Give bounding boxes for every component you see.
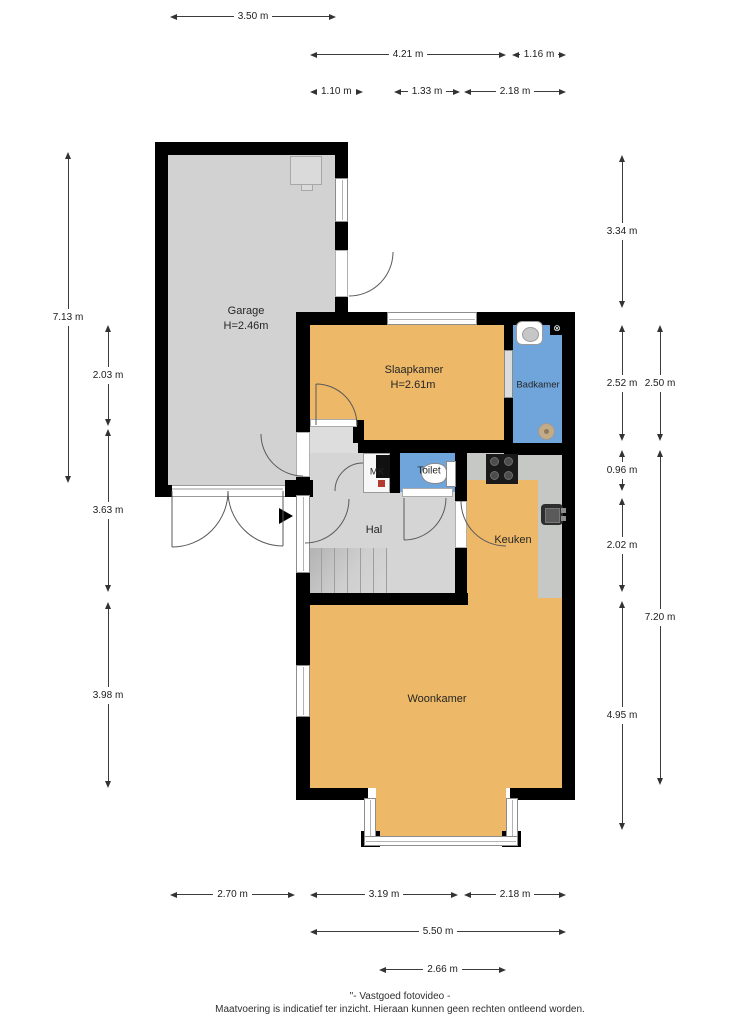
garage-label: Garage	[228, 305, 265, 317]
dimension-right-250: 2.50 m	[638, 325, 682, 441]
dimension-left-713: 7.13 m	[46, 152, 90, 483]
slaapkamer-height-label: H=2.61m	[391, 379, 436, 391]
dimension-top-133: 1.33 m	[394, 85, 460, 98]
dimension-top-slaapkamer: 4.21 m	[310, 48, 506, 61]
hal-label: Hal	[366, 524, 383, 536]
dimension-right-720: 7.20 m	[638, 450, 682, 785]
mk-label: MK	[370, 467, 384, 478]
dimension-right-334: 3.34 m	[600, 155, 644, 308]
toilet-label: Toilet	[417, 466, 440, 477]
footer-disclaimer: Maatvoering is indicatief ter inzicht. H…	[70, 1003, 730, 1016]
dimension-bottom-218: 2.18 m	[464, 888, 566, 901]
dimension-top-218: 2.18 m	[464, 85, 566, 98]
slaapkamer-label: Slaapkamer	[385, 364, 444, 376]
floor-plan-page: ⊗ Garage H=2.46m Slaapkamer H=2.61m Badk…	[0, 0, 730, 1032]
dimension-top-badkamer: 1.16 m	[512, 48, 566, 61]
keuken-label: Keuken	[494, 534, 531, 546]
dimension-left-363: 3.63 m	[86, 429, 130, 592]
dimension-right-495: 4.95 m	[600, 601, 644, 830]
dimension-bottom-550: 5.50 m	[310, 925, 566, 938]
garage-height-label: H=2.46m	[224, 320, 269, 332]
dimension-bottom-266: 2.66 m	[379, 963, 506, 976]
footer-credit: "- Vastgoed fotovideo -	[70, 990, 730, 1003]
dimension-bottom-319: 3.19 m	[310, 888, 458, 901]
woonkamer-label: Woonkamer	[407, 693, 466, 705]
dimension-top-110: 1.10 m	[310, 85, 361, 98]
dimension-bottom-270: 2.70 m	[170, 888, 295, 901]
footer: "- Vastgoed fotovideo - Maatvoering is i…	[70, 990, 730, 1016]
dimension-top-garage: 3.50 m	[170, 10, 336, 23]
dimension-left-398: 3.98 m	[86, 602, 130, 788]
dimension-left-203: 2.03 m	[86, 325, 130, 426]
badkamer-label: Badkamer	[516, 380, 559, 391]
